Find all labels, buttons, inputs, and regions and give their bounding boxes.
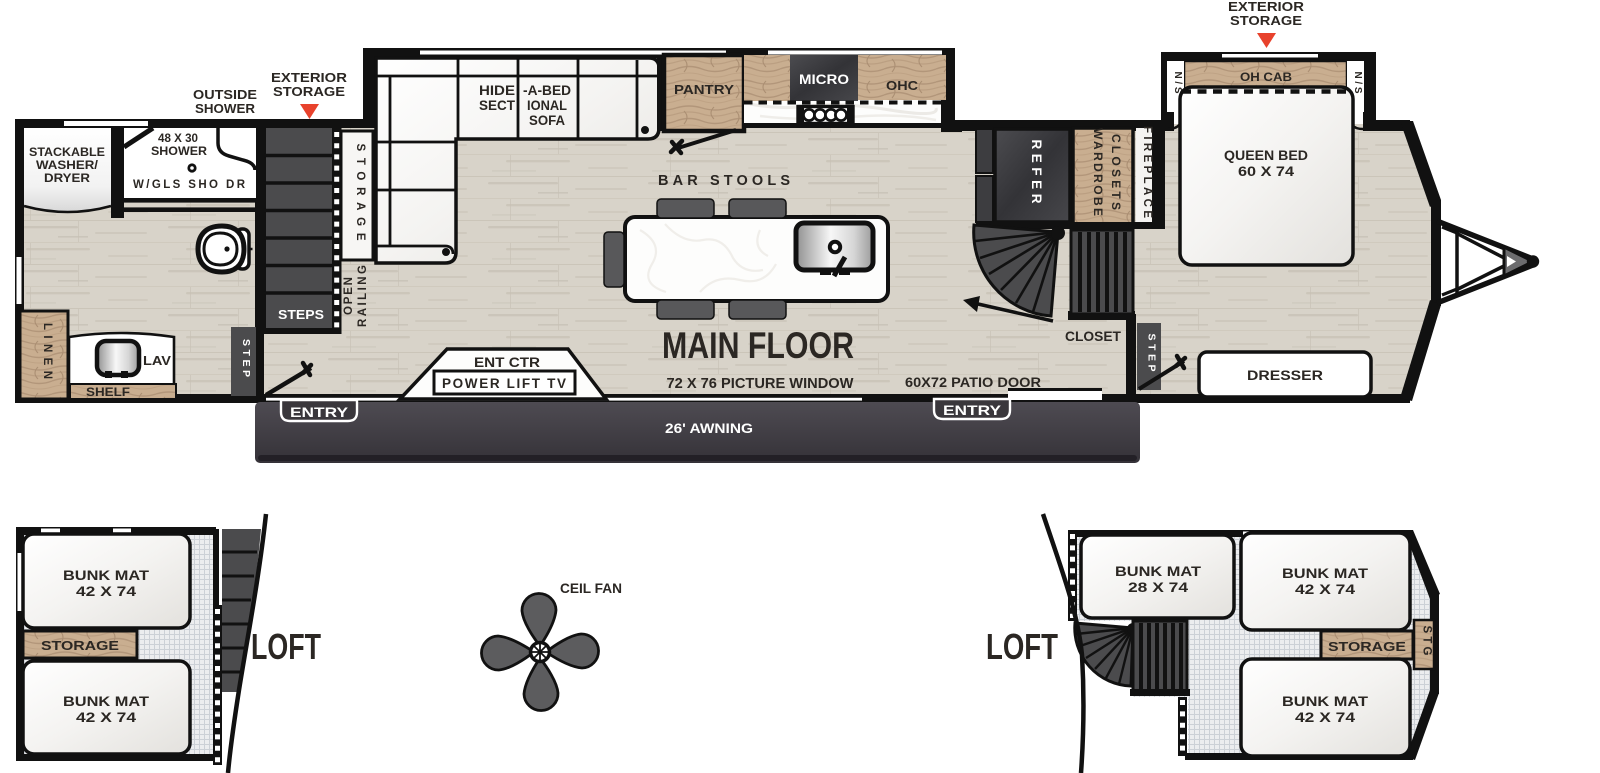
- svg-text:STEPS: STEPS: [278, 308, 324, 322]
- svg-text:BUNK MAT: BUNK MAT: [63, 567, 150, 583]
- svg-text:N/S: N/S: [1352, 72, 1363, 94]
- svg-text:CLOSET: CLOSET: [1065, 329, 1122, 344]
- svg-text:ENTRY: ENTRY: [943, 402, 1002, 418]
- svg-text:DRESSER: DRESSER: [1247, 368, 1323, 383]
- svg-text:42 X 74: 42 X 74: [1295, 581, 1355, 597]
- svg-text:42 X 74: 42 X 74: [1295, 709, 1355, 725]
- svg-text:BAR STOOLS: BAR STOOLS: [658, 173, 790, 189]
- svg-text:EXTERIOR: EXTERIOR: [271, 70, 348, 85]
- svg-text:STORAGE: STORAGE: [273, 84, 345, 99]
- svg-text:28 X 74: 28 X 74: [1128, 579, 1188, 595]
- svg-text:BUNK MAT: BUNK MAT: [1115, 563, 1202, 579]
- svg-text:PANTRY: PANTRY: [674, 82, 734, 97]
- svg-text:QUEEN BED: QUEEN BED: [1224, 147, 1308, 163]
- svg-text:SHOWER: SHOWER: [151, 146, 208, 158]
- svg-text:42 X 74: 42 X 74: [76, 709, 136, 725]
- svg-text:SHELF: SHELF: [86, 387, 130, 399]
- svg-text:BUNK MAT: BUNK MAT: [1282, 565, 1369, 581]
- svg-text:CEIL FAN: CEIL FAN: [560, 581, 622, 596]
- svg-text:OH CAB: OH CAB: [1240, 72, 1292, 84]
- svg-text:MICRO: MICRO: [799, 72, 849, 87]
- svg-text:26' AWNING: 26' AWNING: [665, 421, 753, 436]
- svg-text:STORAGE: STORAGE: [1328, 639, 1406, 654]
- svg-text:EXTERIOR: EXTERIOR: [1228, 0, 1305, 14]
- svg-text:LOFT: LOFT: [986, 626, 1058, 667]
- svg-text:48 X 30: 48 X 30: [158, 133, 198, 145]
- svg-text:IONAL: IONAL: [527, 98, 567, 113]
- svg-text:SECT: SECT: [479, 98, 516, 113]
- svg-text:STG: STG: [1421, 626, 1433, 656]
- svg-text:STORAGE: STORAGE: [41, 638, 119, 653]
- svg-text:ENTRY: ENTRY: [290, 404, 349, 420]
- svg-text:DRYER: DRYER: [44, 173, 91, 185]
- svg-text:SHOWER: SHOWER: [195, 101, 256, 116]
- svg-text:LOFT: LOFT: [251, 626, 321, 667]
- svg-text:60 X 74: 60 X 74: [1238, 163, 1294, 179]
- svg-text:MAIN FLOOR: MAIN FLOOR: [662, 325, 854, 366]
- svg-text:HIDE: HIDE: [479, 83, 515, 98]
- svg-text:STACKABLE: STACKABLE: [29, 147, 105, 159]
- svg-text:OUTSIDE: OUTSIDE: [193, 87, 257, 102]
- svg-text:WASHER/: WASHER/: [36, 160, 99, 172]
- svg-text:OHC: OHC: [886, 79, 918, 93]
- svg-text:STORAGE: STORAGE: [1230, 13, 1302, 28]
- svg-text:BUNK MAT: BUNK MAT: [1282, 693, 1369, 709]
- svg-text:ENT CTR: ENT CTR: [474, 355, 540, 370]
- svg-text:BUNK MAT: BUNK MAT: [63, 693, 150, 709]
- svg-text:CLOSETS: CLOSETS: [1109, 134, 1123, 210]
- svg-text:POWER LIFT TV: POWER LIFT TV: [442, 376, 566, 391]
- svg-text:REFER: REFER: [1029, 140, 1044, 204]
- svg-text:42 X 74: 42 X 74: [76, 583, 136, 599]
- svg-text:60X72 PATIO DOOR: 60X72 PATIO DOOR: [905, 375, 1041, 390]
- svg-text:LAV: LAV: [143, 354, 172, 368]
- svg-text:72 X 76 PICTURE WINDOW: 72 X 76 PICTURE WINDOW: [667, 376, 854, 392]
- svg-text:-A-BED: -A-BED: [523, 83, 571, 98]
- svg-text:SOFA: SOFA: [529, 113, 565, 128]
